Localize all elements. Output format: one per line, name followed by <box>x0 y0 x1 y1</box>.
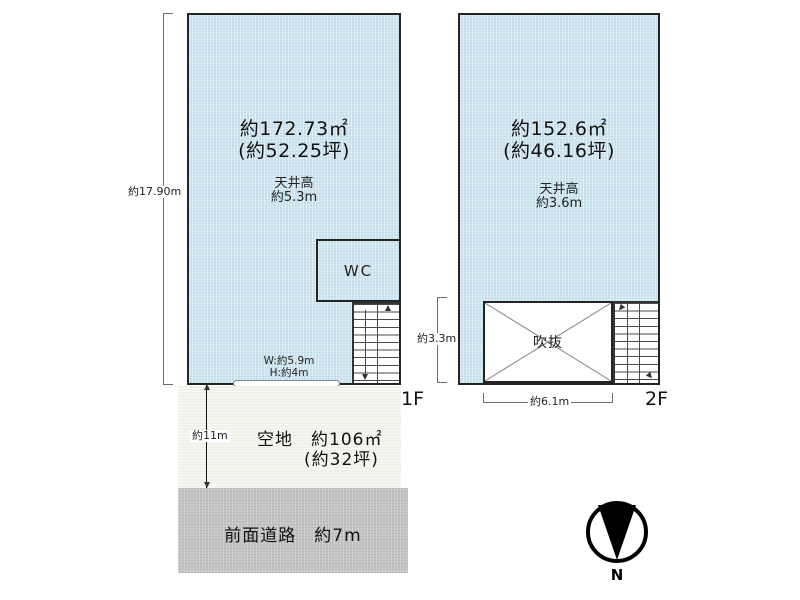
floor-plan-canvas: 約172.73㎡ (約52.25坪) 天井高 約5.3m WC W:約5.9m … <box>0 0 800 600</box>
opening-width-label: W:約5.9m <box>229 355 349 367</box>
stair-divider <box>639 303 640 383</box>
floor2-plan: 約152.6㎡ (約46.16坪) 天井高 約3.6m 吹抜 <box>458 13 660 385</box>
floor1-label: 1F <box>401 388 424 410</box>
opening-height-label: H:約4m <box>229 367 349 379</box>
floor2-label: 2F <box>645 388 668 410</box>
floor1-ceiling-label: 天井高 <box>189 177 399 191</box>
north-compass: N <box>583 500 651 580</box>
floor1-ceiling-value: 約5.3m <box>189 191 399 205</box>
dim-depth-label: 約17.90m <box>126 186 183 198</box>
stair-arrow-bottom-icon <box>646 372 654 380</box>
floor2-ceiling-value: 約3.6m <box>460 197 658 211</box>
floor2-area-tsubo: (約46.16坪) <box>460 140 658 162</box>
stair-arrow-top-icon <box>617 304 625 312</box>
void-label: 吹抜 <box>533 332 563 352</box>
dim-void-depth-label: 約3.3m <box>415 333 458 345</box>
dim-void-depth-tick-top <box>437 297 447 298</box>
floor2-ceiling-label: 天井高 <box>460 183 658 197</box>
floor2-area-text: 約152.6㎡ (約46.16坪) <box>460 118 658 162</box>
dim-vacant-depth-arrow-up-icon <box>204 384 210 390</box>
wc-label: WC <box>344 262 373 280</box>
stair-divider <box>377 304 378 383</box>
floor1-area: 約172.73㎡ <box>189 118 399 140</box>
void-box: 吹抜 <box>483 301 613 383</box>
floor1-stairs <box>352 302 399 383</box>
dim-depth-tick-bottom <box>163 384 173 385</box>
dim-void-width-label: 約6.1m <box>528 396 571 408</box>
dim-depth-line <box>163 13 164 385</box>
wc-room: WC <box>316 239 401 302</box>
north-arrow-icon <box>583 500 651 566</box>
north-label: N <box>583 566 651 584</box>
stair-divider <box>627 303 628 383</box>
dim-void-depth-tick-bottom <box>437 382 447 383</box>
dim-void-width-tick-right <box>612 393 613 403</box>
stair-path-line <box>365 310 366 376</box>
vacant-land-tsubo: (約32坪) <box>304 445 379 470</box>
floor1-plan: 約172.73㎡ (約52.25坪) 天井高 約5.3m WC W:約5.9m … <box>187 13 401 385</box>
dim-depth-tick-top <box>163 13 173 14</box>
front-road-label: 前面道路 約7m <box>178 521 408 546</box>
floor2-ceiling-text: 天井高 約3.6m <box>460 183 658 211</box>
dim-vacant-depth-label: 約11m <box>190 430 230 442</box>
opening-size-text: W:約5.9m H:約4m <box>229 355 349 379</box>
front-road: 前面道路 約7m <box>178 488 408 573</box>
floor2-area: 約152.6㎡ <box>460 118 658 140</box>
floor1-area-tsubo: (約52.25坪) <box>189 140 399 162</box>
stair-arrow-up-icon <box>385 305 391 311</box>
floor2-stairs <box>613 301 658 383</box>
floor1-area-text: 約172.73㎡ (約52.25坪) <box>189 118 399 162</box>
floor1-ceiling-text: 天井高 約5.3m <box>189 177 399 205</box>
dim-void-width-tick-left <box>483 393 484 403</box>
stair-arrow-down-icon <box>362 374 368 380</box>
